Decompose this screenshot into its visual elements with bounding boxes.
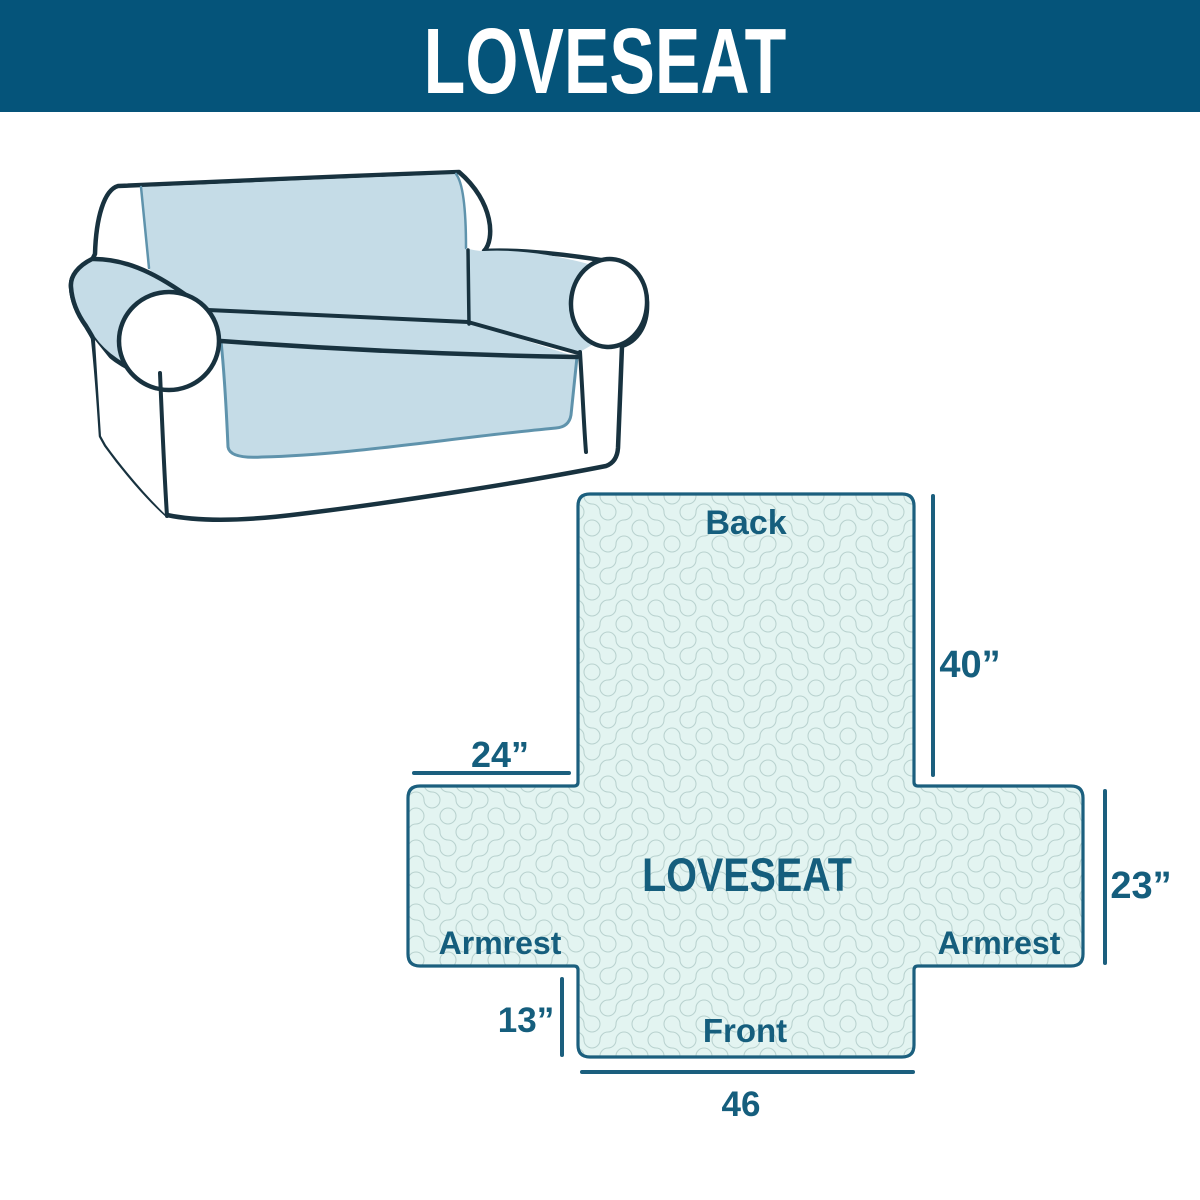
svg-text:LOVESEAT: LOVESEAT	[642, 850, 852, 902]
svg-text:13”: 13”	[498, 1001, 554, 1040]
svg-text:24”: 24”	[471, 734, 529, 775]
svg-text:23”: 23”	[1110, 865, 1171, 907]
svg-text:LOVESEAT: LOVESEAT	[424, 10, 787, 114]
svg-text:Armrest: Armrest	[938, 925, 1061, 961]
svg-text:Back: Back	[705, 504, 786, 542]
svg-text:46: 46	[722, 1085, 761, 1124]
svg-text:40”: 40”	[939, 644, 1000, 686]
svg-text:Armrest: Armrest	[439, 925, 562, 961]
svg-text:Front: Front	[703, 1012, 787, 1049]
